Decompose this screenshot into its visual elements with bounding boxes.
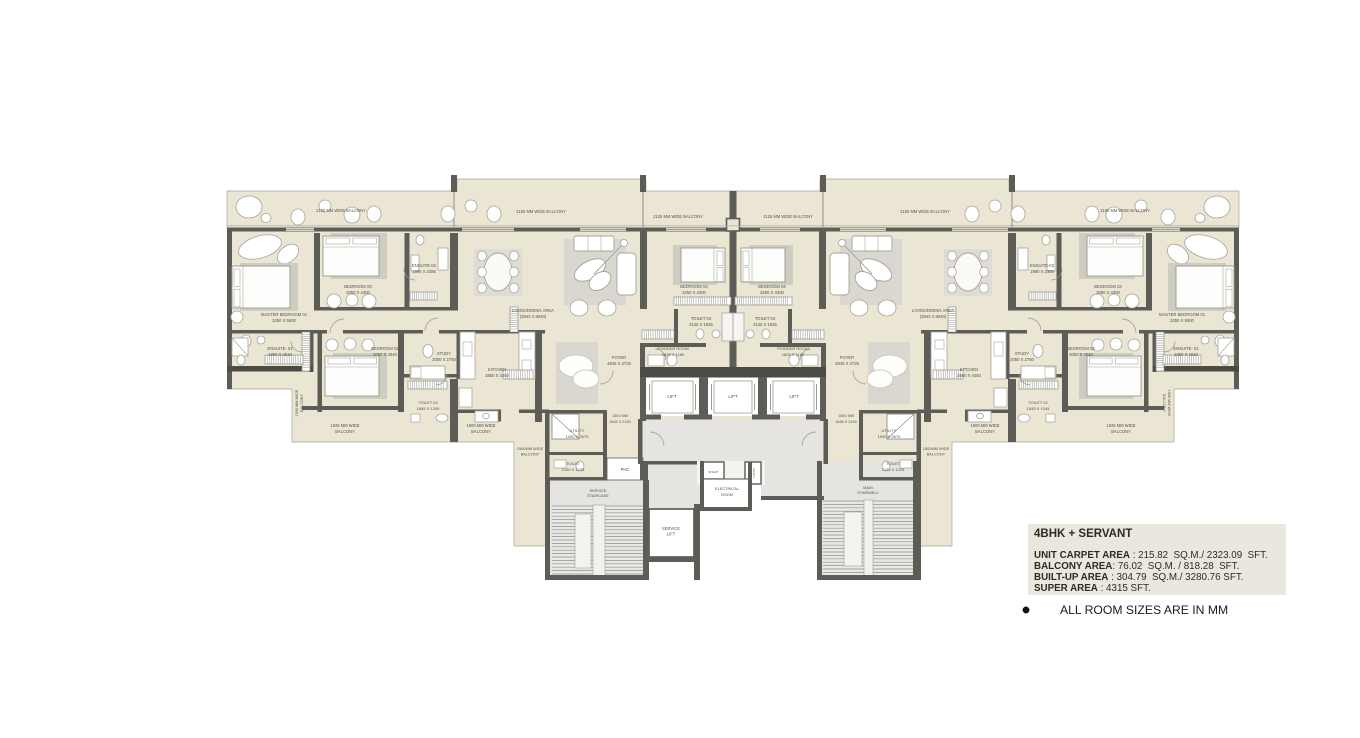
svg-text:2150 MM WIDE BALCONY: 2150 MM WIDE BALCONY <box>516 209 566 214</box>
svg-text:LIVING/DINING AREA: LIVING/DINING AREA <box>512 308 554 313</box>
svg-text:1500MM WIDE: 1500MM WIDE <box>517 446 544 451</box>
svg-text:3050 X 4300: 3050 X 4300 <box>346 290 370 295</box>
svg-text:LIFT: LIFT <box>667 532 676 537</box>
svg-text:1050 X 2675: 1050 X 2675 <box>566 434 589 439</box>
svg-text:1500 MM: 1500 MM <box>612 414 628 418</box>
svg-text:1850 X 2810: 1850 X 2810 <box>268 352 292 357</box>
svg-text:STUDY: STUDY <box>437 351 451 356</box>
svg-text:1050 X 2675: 1050 X 2675 <box>878 434 901 439</box>
svg-text:FOYER: FOYER <box>612 355 626 360</box>
svg-text:2125 MM WIDE BALCONY: 2125 MM WIDE BALCONY <box>763 214 813 219</box>
svg-text:POWDER ROOM: POWDER ROOM <box>657 346 689 351</box>
svg-text:UNIT CARPET AREA : 215.82 SQ.: UNIT CARPET AREA : 215.82 SQ.M./ 2323.09… <box>1034 550 1268 561</box>
svg-text:2150 X 1225: 2150 X 1225 <box>562 467 585 472</box>
svg-text:BEDROOM 02: BEDROOM 02 <box>1067 346 1095 351</box>
svg-text:LIFT: LIFT <box>789 394 799 399</box>
svg-text:STAIRWELL: STAIRWELL <box>857 490 880 495</box>
svg-text:KITCHEN: KITCHEN <box>960 367 978 372</box>
svg-text:1800 MM WIDE: 1800 MM WIDE <box>467 423 496 428</box>
svg-text:1825 MM WIDE: 1825 MM WIDE <box>1107 423 1136 428</box>
svg-text:KITCHEN: KITCHEN <box>488 367 506 372</box>
svg-text:1825 MM WIDE: 1825 MM WIDE <box>331 423 360 428</box>
svg-text:SUPER AREA : 4315 SFT.: SUPER AREA : 4315 SFT. <box>1034 583 1151 594</box>
svg-text:BALCONY AREA: 76.02 SQ.M. / 8: BALCONY AREA: 76.02 SQ.M. / 818.28 SFT. <box>1034 561 1239 572</box>
svg-text:1845 X 2190: 1845 X 2190 <box>835 420 857 424</box>
svg-text:3850 X 4450: 3850 X 4450 <box>485 373 509 378</box>
svg-text:2150 MM WIDE BALCONY: 2150 MM WIDE BALCONY <box>316 208 366 213</box>
svg-text:MASTER BEDROOM 01: MASTER BEDROOM 01 <box>1159 312 1206 317</box>
svg-text:BUILT-UP AREA : 304.79 SQ.M./: BUILT-UP AREA : 304.79 SQ.M./ 3280.76 SF… <box>1034 572 1243 583</box>
svg-text:TOILET 02: TOILET 02 <box>418 400 438 405</box>
svg-text:TOILET 02: TOILET 02 <box>1028 400 1048 405</box>
svg-text:LIFT: LIFT <box>728 394 738 399</box>
svg-text:1500 MM: 1500 MM <box>838 414 854 418</box>
svg-text:ENSUITE- 01: ENSUITE- 01 <box>1173 346 1199 351</box>
svg-text:ALL ROOM SIZES ARE IN MM: ALL ROOM SIZES ARE IN MM <box>1060 603 1228 617</box>
svg-text:2150 MM WIDE BALCONY: 2150 MM WIDE BALCONY <box>900 209 950 214</box>
svg-text:TOILET: TOILET <box>886 461 900 466</box>
svg-text:STUDY: STUDY <box>1015 351 1029 356</box>
svg-text:2150 MM WIDE BALCONY: 2150 MM WIDE BALCONY <box>1100 208 1150 213</box>
svg-text:MASTER BEDROOM 01: MASTER BEDROOM 01 <box>261 312 308 317</box>
svg-text:BALCONY: BALCONY <box>300 393 304 412</box>
svg-text:3250 X 5500: 3250 X 5500 <box>1170 318 1194 323</box>
svg-text:1800 MM WIDE: 1800 MM WIDE <box>971 423 1000 428</box>
svg-text:3050 X 4300: 3050 X 4300 <box>1096 290 1120 295</box>
svg-text:2150 X 1225: 2150 X 1225 <box>882 467 905 472</box>
svg-text:1825 X 1180: 1825 X 1180 <box>782 352 805 357</box>
svg-text:TOILET: TOILET <box>566 461 580 466</box>
svg-text:PHC: PHC <box>621 467 630 472</box>
svg-text:SHAFT: SHAFT <box>708 470 718 474</box>
svg-text:LIVING/DINING AREA: LIVING/DINING AREA <box>912 308 954 313</box>
svg-text:TOILET 04: TOILET 04 <box>691 316 712 321</box>
svg-text:UTILITY: UTILITY <box>570 428 585 433</box>
svg-text:4845 X 4725: 4845 X 4725 <box>835 361 859 366</box>
svg-text:SHAFT: SHAFT <box>752 468 756 478</box>
svg-text:1845 X 2190: 1845 X 2190 <box>609 420 631 424</box>
svg-text:2050 X 2750: 2050 X 2750 <box>1010 357 1034 362</box>
svg-text:2125 X 1825: 2125 X 1825 <box>689 322 713 327</box>
svg-text:3250 X 4300: 3250 X 4300 <box>760 290 784 295</box>
svg-text:1850 X 2810: 1850 X 2810 <box>1174 352 1198 357</box>
svg-text:BEDROOM 03: BEDROOM 03 <box>344 284 372 289</box>
svg-text:ROOM: ROOM <box>721 492 733 497</box>
svg-text:ENSUITE- 01: ENSUITE- 01 <box>267 346 293 351</box>
svg-text:4BHK + SERVANT: 4BHK + SERVANT <box>1034 528 1132 540</box>
svg-text:1845 X 1345: 1845 X 1345 <box>1027 406 1050 411</box>
svg-text:1890 X 2385: 1890 X 2385 <box>412 269 436 274</box>
svg-text:1500 MM WIDE: 1500 MM WIDE <box>295 389 299 416</box>
svg-text:BEDROOM 04: BEDROOM 04 <box>758 284 786 289</box>
svg-text:BALCONY: BALCONY <box>1111 429 1131 434</box>
svg-text:1890 X 2385: 1890 X 2385 <box>1030 269 1054 274</box>
svg-text:1825 X 1180: 1825 X 1180 <box>662 352 685 357</box>
svg-text:ENSUITE-02: ENSUITE-02 <box>412 263 437 268</box>
svg-text:2125 X 1825: 2125 X 1825 <box>753 322 777 327</box>
svg-text:BEDROOM 02: BEDROOM 02 <box>371 346 399 351</box>
svg-text:BALCONY: BALCONY <box>335 429 355 434</box>
svg-text:STAIRCASE: STAIRCASE <box>587 493 609 498</box>
svg-text:LIFT: LIFT <box>667 394 677 399</box>
svg-text:3250 X 4300: 3250 X 4300 <box>682 290 706 295</box>
svg-text:4845 X 4725: 4845 X 4725 <box>607 361 631 366</box>
svg-text:3050 X 4040: 3050 X 4040 <box>1069 352 1093 357</box>
svg-text:3850 X 4450: 3850 X 4450 <box>957 373 981 378</box>
svg-text:POWDER ROOM: POWDER ROOM <box>777 346 809 351</box>
svg-text:BEDROOM 04: BEDROOM 04 <box>680 284 708 289</box>
svg-text:(3843 X 8640): (3843 X 8640) <box>920 314 947 319</box>
svg-text:1500MM WIDE: 1500MM WIDE <box>923 446 950 451</box>
svg-text:3250 X 5500: 3250 X 5500 <box>272 318 296 323</box>
svg-text:TOILET 04: TOILET 04 <box>755 316 776 321</box>
svg-text:3050 X 4040: 3050 X 4040 <box>373 352 397 357</box>
svg-text:BALCONY: BALCONY <box>1162 394 1166 413</box>
svg-text:1845 X 1345: 1845 X 1345 <box>417 406 440 411</box>
svg-text:BALCONY: BALCONY <box>975 429 995 434</box>
svg-text:2050 X 2750: 2050 X 2750 <box>432 357 456 362</box>
svg-text:1500 MM WIDE: 1500 MM WIDE <box>1167 390 1171 417</box>
svg-text:BEDROOM 03: BEDROOM 03 <box>1094 284 1122 289</box>
svg-text:UTILITY: UTILITY <box>882 428 897 433</box>
svg-text:BALCONY: BALCONY <box>521 452 540 457</box>
svg-text:ELECTRICAL: ELECTRICAL <box>715 486 740 491</box>
svg-text:BALCONY: BALCONY <box>471 429 491 434</box>
svg-text:(3843 X 8640): (3843 X 8640) <box>520 314 547 319</box>
svg-text:ENSUITE-02: ENSUITE-02 <box>1030 263 1055 268</box>
svg-text:SERVICE: SERVICE <box>662 526 680 531</box>
svg-text:2125 MM WIDE BALCONY: 2125 MM WIDE BALCONY <box>653 214 703 219</box>
svg-text:FOYER: FOYER <box>840 355 854 360</box>
svg-text:BALCONY: BALCONY <box>927 452 946 457</box>
